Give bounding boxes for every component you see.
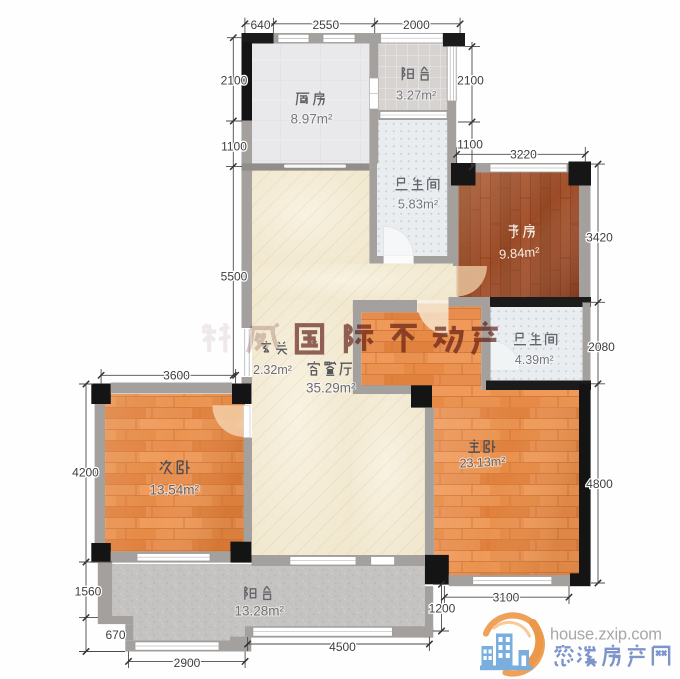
svg-text:9.84m²: 9.84m² [499, 244, 541, 262]
svg-text:2100: 2100 [221, 74, 248, 88]
svg-text:2.32m²: 2.32m² [253, 363, 292, 377]
svg-text:2550: 2550 [312, 18, 339, 32]
svg-text:8.97m²: 8.97m² [291, 112, 334, 127]
svg-text:2000: 2000 [403, 18, 430, 32]
svg-text:3.27m²: 3.27m² [396, 88, 437, 103]
svg-text:3100: 3100 [493, 591, 520, 605]
svg-text:3420: 3420 [586, 231, 613, 245]
svg-text:23.13m²: 23.13m² [459, 454, 506, 470]
svg-text:4800: 4800 [586, 477, 613, 491]
svg-text:3600: 3600 [163, 368, 190, 382]
svg-text:5.83m²: 5.83m² [398, 197, 439, 212]
svg-text:670: 670 [105, 628, 125, 642]
svg-text:5500: 5500 [221, 270, 248, 284]
svg-text:13.54m²: 13.54m² [150, 483, 200, 498]
svg-text:2080: 2080 [588, 340, 615, 354]
svg-text:4500: 4500 [329, 640, 356, 654]
svg-text:4.39m²: 4.39m² [515, 353, 554, 367]
svg-text:3220: 3220 [510, 148, 537, 162]
svg-text:1100: 1100 [221, 139, 247, 153]
svg-text:1100: 1100 [457, 138, 483, 152]
svg-text:2900: 2900 [174, 656, 201, 670]
svg-text:4200: 4200 [72, 466, 99, 480]
svg-text:2100: 2100 [457, 73, 484, 87]
svg-text:1560: 1560 [75, 585, 102, 599]
svg-text:house.zxip.com: house.zxip.com [550, 626, 662, 644]
svg-text:1200: 1200 [429, 602, 456, 616]
svg-text:13.28m²: 13.28m² [235, 604, 285, 619]
svg-text:35.29m²: 35.29m² [306, 381, 356, 396]
svg-text:640: 640 [250, 18, 270, 32]
